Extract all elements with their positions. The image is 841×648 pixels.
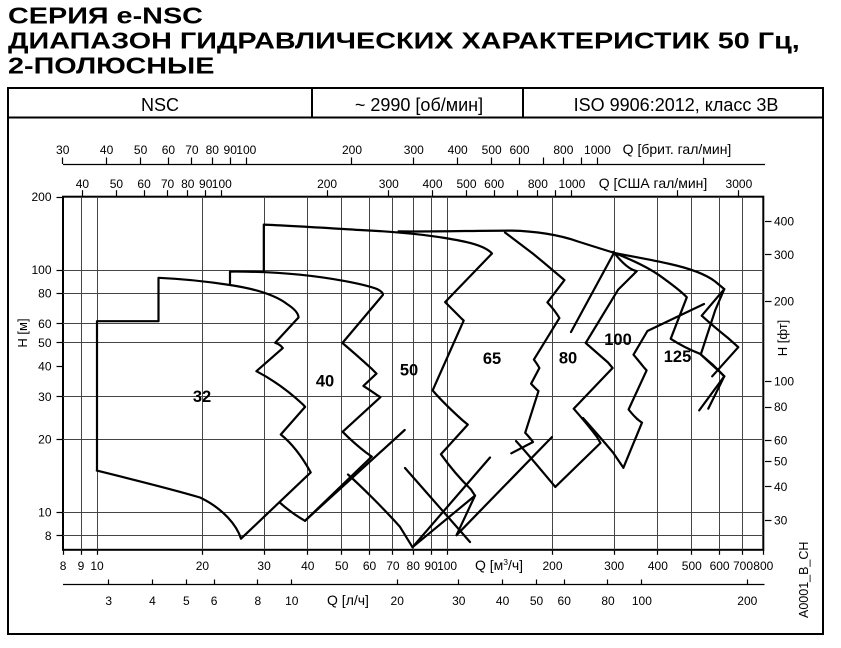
svg-text:NSC: NSC [141,95,179,115]
svg-text:80: 80 [407,559,421,573]
svg-text:200: 200 [31,190,51,204]
svg-text:СЕРИЯ e-NSC: СЕРИЯ e-NSC [8,2,203,28]
svg-text:8: 8 [45,529,52,543]
svg-text:1000: 1000 [584,143,611,157]
svg-text:60: 60 [162,143,176,157]
svg-text:200: 200 [737,594,757,608]
svg-text:40: 40 [496,594,510,608]
svg-text:10: 10 [90,559,104,573]
svg-text:80: 80 [181,177,195,191]
svg-text:8: 8 [60,559,67,573]
svg-text:60: 60 [38,317,52,331]
svg-text:40: 40 [38,360,52,374]
svg-text:Q [брит. гал/мин]: Q [брит. гал/мин] [623,141,732,157]
svg-text:30: 30 [38,390,52,404]
svg-text:30: 30 [774,513,788,527]
svg-text:40: 40 [76,177,90,191]
svg-text:8: 8 [255,594,262,608]
svg-text:20: 20 [196,559,210,573]
svg-text:60: 60 [558,594,572,608]
svg-text:9: 9 [78,559,85,573]
svg-text:125: 125 [664,348,692,366]
svg-text:40: 40 [301,559,315,573]
svg-text:30: 30 [257,559,271,573]
svg-text:50: 50 [774,454,788,468]
svg-text:20: 20 [391,594,405,608]
svg-text:60: 60 [774,433,788,447]
svg-text:6: 6 [211,594,218,608]
svg-text:400: 400 [648,559,668,573]
svg-text:50: 50 [400,362,418,380]
svg-text:~ 2990 [об/мин]: ~ 2990 [об/мин] [355,95,483,115]
svg-text:80: 80 [774,400,788,414]
svg-text:80: 80 [601,594,615,608]
svg-text:ДИАПАЗОН ГИДРАВЛИЧЕСКИХ ХАРАКТ: ДИАПАЗОН ГИДРАВЛИЧЕСКИХ ХАРАКТЕРИСТИК 50… [8,27,800,53]
svg-text:400: 400 [422,177,442,191]
svg-text:300: 300 [604,559,624,573]
svg-text:50: 50 [530,594,544,608]
svg-text:70: 70 [161,177,175,191]
svg-text:200: 200 [317,177,337,191]
svg-text:40: 40 [316,373,334,391]
svg-text:H [фт]: H [фт] [775,320,790,357]
svg-text:A0001_B_CH: A0001_B_CH [797,542,811,618]
svg-text:65: 65 [483,350,501,368]
svg-text:90: 90 [424,559,438,573]
svg-text:80: 80 [206,143,220,157]
svg-text:5: 5 [183,594,190,608]
svg-text:3000: 3000 [726,177,753,191]
svg-text:80: 80 [38,287,52,301]
svg-text:32: 32 [193,388,211,406]
svg-text:500: 500 [482,143,502,157]
svg-text:50: 50 [38,336,52,350]
svg-text:10: 10 [38,506,52,520]
svg-text:2-ПОЛЮСНЫЕ: 2-ПОЛЮСНЫЕ [8,52,214,78]
svg-text:20: 20 [38,433,52,447]
svg-text:800: 800 [553,143,573,157]
svg-text:30: 30 [56,143,70,157]
svg-text:3: 3 [105,594,112,608]
svg-text:500: 500 [682,559,702,573]
svg-text:100: 100 [604,331,632,349]
svg-text:1000: 1000 [559,177,586,191]
svg-text:400: 400 [774,215,794,229]
svg-text:300: 300 [379,177,399,191]
svg-text:100: 100 [632,594,652,608]
svg-text:90: 90 [224,143,238,157]
svg-text:100: 100 [31,263,51,277]
svg-text:Q [м3/ч]: Q [м3/ч] [475,557,523,573]
svg-text:40: 40 [100,143,114,157]
svg-text:90: 90 [199,177,213,191]
svg-text:50: 50 [335,559,349,573]
svg-text:70: 70 [185,143,199,157]
svg-text:500: 500 [456,177,476,191]
svg-text:800: 800 [753,559,773,573]
svg-text:ISO 9906:2012, класс 3В: ISO 9906:2012, класс 3В [574,95,779,115]
svg-text:600: 600 [484,177,504,191]
svg-text:50: 50 [110,177,124,191]
svg-text:10: 10 [285,594,299,608]
svg-text:100: 100 [774,375,794,389]
svg-text:700: 700 [733,559,753,573]
svg-text:80: 80 [559,350,577,368]
svg-text:300: 300 [404,143,424,157]
svg-text:50: 50 [134,143,148,157]
svg-text:Q [л/ч]: Q [л/ч] [327,592,369,608]
svg-text:4: 4 [149,594,156,608]
svg-text:200: 200 [542,559,562,573]
svg-text:100: 100 [236,143,256,157]
svg-text:100: 100 [437,559,457,573]
svg-text:400: 400 [448,143,468,157]
svg-text:300: 300 [774,248,794,262]
svg-text:200: 200 [774,295,794,309]
svg-text:600: 600 [509,143,529,157]
svg-text:60: 60 [137,177,151,191]
svg-text:H [м]: H [м] [15,318,30,347]
svg-text:600: 600 [710,559,730,573]
svg-text:100: 100 [212,177,232,191]
svg-text:200: 200 [342,143,362,157]
svg-text:Q [США гал/мин]: Q [США гал/мин] [599,175,708,191]
svg-text:800: 800 [528,177,548,191]
svg-text:40: 40 [774,480,788,494]
svg-text:60: 60 [363,559,377,573]
svg-text:70: 70 [386,559,400,573]
svg-text:30: 30 [452,594,466,608]
